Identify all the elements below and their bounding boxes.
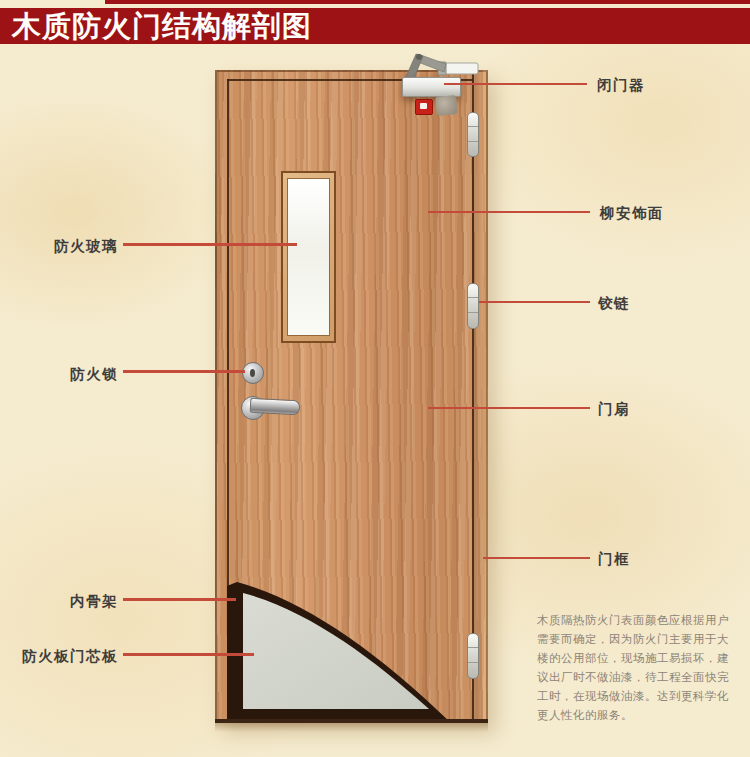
description-line: 需要而确定，因为防火门主要用于大 xyxy=(537,630,722,649)
label-core-board: 防火板门芯板 xyxy=(22,647,118,666)
leader-line-hinge xyxy=(479,301,590,303)
diagram-root: 木质防火门结构解剖图 xyxy=(0,0,750,757)
door-closer-body xyxy=(402,77,461,97)
label-inner-skeleton: 内骨架 xyxy=(70,592,118,611)
description-line: 木质隔热防火门表面颜色应根据用户 xyxy=(537,611,722,630)
door-seam-left xyxy=(227,79,229,587)
description-line: 更人性化的服务。 xyxy=(537,706,722,725)
leader-line-inner-skeleton xyxy=(123,598,236,601)
fire-glass-pane xyxy=(287,178,330,336)
label-veneer: 柳安饰面 xyxy=(600,204,664,223)
title-banner: 木质防火门结构解剖图 xyxy=(0,8,750,44)
label-hinge: 铰链 xyxy=(598,294,630,313)
leader-line-fire-lock xyxy=(123,370,245,373)
page-title: 木质防火门结构解剖图 xyxy=(12,8,312,45)
door-frame-right-jamb xyxy=(474,70,488,723)
brand-badge-center xyxy=(420,103,427,109)
label-door-leaf: 门扇 xyxy=(598,400,630,419)
label-fire-lock: 防火锁 xyxy=(70,365,118,384)
hinge-bottom xyxy=(467,633,479,679)
closer-slide-channel xyxy=(442,63,478,74)
leader-line-door-leaf xyxy=(428,407,590,409)
hinge-middle xyxy=(467,283,479,329)
core-board-shape xyxy=(243,593,429,709)
hinge-top xyxy=(467,112,479,157)
leader-line-door-closer xyxy=(444,83,587,85)
door-floor-shadow xyxy=(215,723,488,732)
description-text: 木质隔热防火门表面颜色应根据用户 需要而确定，因为防火门主要用于大 楼的公用部位… xyxy=(537,611,722,725)
leader-line-fire-glass xyxy=(123,243,297,246)
description-line: 楼的公用部位，现场施工易损坏，建 xyxy=(537,649,722,668)
top-accent-line xyxy=(105,0,750,4)
door-closer-arm-icon xyxy=(396,48,488,80)
rating-label-patch xyxy=(435,95,458,116)
label-door-closer: 闭门器 xyxy=(597,76,645,95)
description-line: 议出厂时不做油漆，待工程全面快完 xyxy=(537,668,722,687)
label-fire-glass: 防火玻璃 xyxy=(54,237,118,256)
leader-line-veneer xyxy=(428,211,590,213)
lever-handle xyxy=(250,398,301,416)
closer-arm-pivot xyxy=(416,54,422,60)
description-line: 工时，在现场做油漆。达到更科学化 xyxy=(537,687,722,706)
keyhole xyxy=(250,369,255,377)
leader-line-core-board xyxy=(123,653,254,656)
label-door-frame: 门框 xyxy=(598,550,630,569)
leader-line-door-frame xyxy=(483,557,590,559)
